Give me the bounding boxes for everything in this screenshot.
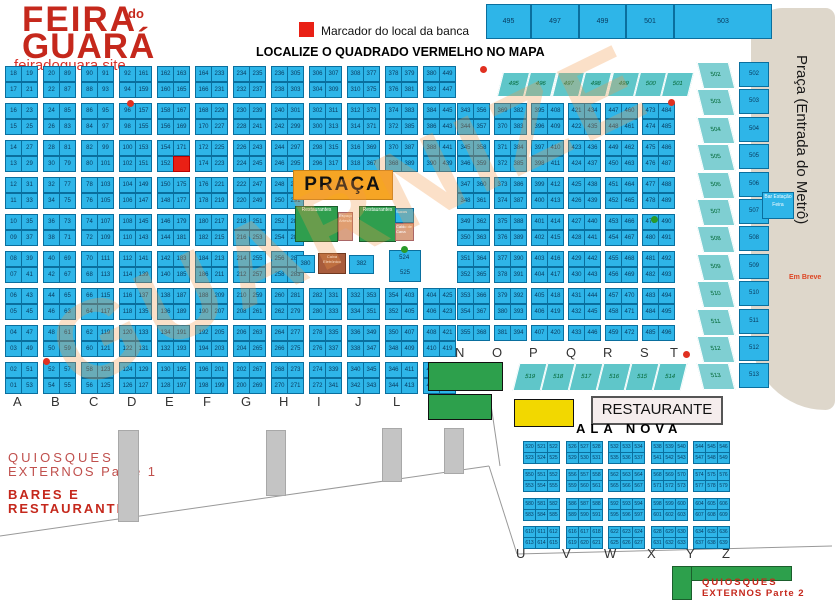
stall-cell: 18 <box>5 66 22 82</box>
stall-cell: 449 <box>605 140 622 156</box>
stall-cell: 180 <box>195 214 212 230</box>
stall-cell: 164 <box>195 66 212 82</box>
stall-cell: 05 <box>5 304 22 320</box>
stall-cell: 81 <box>59 140 76 156</box>
stall-cell: 338 <box>347 341 364 357</box>
stall-cell: 66 <box>81 288 98 304</box>
stall-cell: 58 <box>81 362 98 378</box>
stall-cell: 233 <box>211 66 228 82</box>
stall-cell: 14 <box>5 140 22 156</box>
stall-cell: 03 <box>5 341 22 357</box>
stall-cell: 76 <box>81 193 98 209</box>
stall-cell: 154 <box>157 140 174 156</box>
stall-cell: 436 <box>584 140 601 156</box>
stall-cell: 118 <box>119 304 136 320</box>
stall-cell: 350 <box>385 325 402 341</box>
stall-cell: 176 <box>195 177 212 193</box>
stall-cell: 308 <box>347 66 364 82</box>
stall-cell: 272 <box>309 378 326 394</box>
stall-cell: 379 <box>494 288 511 304</box>
stall-cell: 43 <box>21 288 38 304</box>
stall-cell: 334 <box>347 304 364 320</box>
teal-stall: 510 <box>697 281 736 308</box>
stall-cell: 370 <box>385 140 402 156</box>
stall-cell: 344 <box>457 119 474 135</box>
ala-nova-stall: 549 <box>717 452 730 464</box>
stall-cell: 423 <box>568 140 585 156</box>
stall-cell: 383 <box>510 119 527 135</box>
stall-cell: 268 <box>271 362 288 378</box>
stall-cell: 403 <box>531 251 548 267</box>
stall-cell: 134 <box>157 325 174 341</box>
column-letter-Q: Q <box>566 345 576 360</box>
stall-cell: 483 <box>642 288 659 304</box>
stall-cell: 369 <box>363 140 380 156</box>
stall-cell: 459 <box>605 325 622 341</box>
stall-cell: 119 <box>97 325 114 341</box>
stall-cell: 380 <box>296 255 315 273</box>
stall-cell: 347 <box>457 177 474 193</box>
stall-cell: 185 <box>173 267 190 283</box>
stall-cell: 102 <box>119 156 136 172</box>
stall-cell: 352 <box>457 267 474 283</box>
stall-cell: 473 <box>642 103 659 119</box>
stall-cell: 178 <box>195 193 212 209</box>
stall-cell: 202 <box>233 362 250 378</box>
stall-cell: 267 <box>249 362 266 378</box>
stall-cell: 332 <box>347 288 364 304</box>
stall-cell: 242 <box>271 119 288 135</box>
stall-cell: 150 <box>157 177 174 193</box>
column-letter-D: D <box>127 394 136 409</box>
stall-cell: 404 <box>531 267 548 283</box>
stall-cell: 300 <box>309 119 326 135</box>
stall-cell: 463 <box>621 156 638 172</box>
stall-cell: 445 <box>439 103 456 119</box>
stall-cell: 396 <box>531 119 548 135</box>
stall-cell: 136 <box>157 304 174 320</box>
stall-cell: 311 <box>325 103 342 119</box>
stall-cell: 399 <box>531 177 548 193</box>
stall-cell: 84 <box>81 119 98 135</box>
stall-cell: 417 <box>547 267 564 283</box>
stall-cell: 98 <box>119 119 136 135</box>
stall-cell: 44 <box>43 288 60 304</box>
stall-cell: 220 <box>233 193 250 209</box>
stall-cell: 410 <box>423 341 440 357</box>
stall-cell: 406 <box>423 304 440 320</box>
red-circle-icon <box>683 351 690 358</box>
stall-cell: 08 <box>5 251 22 267</box>
stall-cell: 133 <box>135 325 152 341</box>
stall-cell: 92 <box>119 66 136 82</box>
stall-cell: 413 <box>547 193 564 209</box>
stall-cell: 352 <box>385 304 402 320</box>
stall-cell: 302 <box>309 103 326 119</box>
stall-cell: 409 <box>547 119 564 135</box>
stall-cell: 372 <box>385 119 402 135</box>
stall-cell: 443 <box>584 267 601 283</box>
stall-cell: 466 <box>621 214 638 230</box>
column-letter-U: U <box>516 546 525 561</box>
stall-cell: 243 <box>249 140 266 156</box>
red-circle-icon <box>480 66 487 73</box>
stall-cell: 307 <box>325 66 342 82</box>
teal-stall: 511 <box>697 309 736 336</box>
stall-cell: 410 <box>547 140 564 156</box>
stall-cell: 40 <box>43 251 60 267</box>
stall-cell: 344 <box>385 378 402 394</box>
stall-cell: 131 <box>135 341 152 357</box>
stall-cell: 174 <box>195 156 212 172</box>
stall-cell: 409 <box>401 341 418 357</box>
stall-cell: 23 <box>21 103 38 119</box>
stall-cell: 481 <box>642 251 659 267</box>
stall-cell: 488 <box>658 177 675 193</box>
stall-cell: 374 <box>494 193 511 209</box>
stall-cell: 48 <box>43 325 60 341</box>
stall-cell: 201 <box>211 362 228 378</box>
stall-cell: 504 <box>739 117 769 142</box>
stall-cell: 61 <box>59 325 76 341</box>
stall-cell: 381 <box>401 82 418 98</box>
stall-cell: 72 <box>81 230 98 246</box>
stall-cell: 406 <box>531 304 548 320</box>
stall-cell: 97 <box>97 119 114 135</box>
stall-cell: 144 <box>157 230 174 246</box>
stall-cell: 306 <box>309 66 326 82</box>
stall-cell: 356 <box>473 103 490 119</box>
logo-do: do <box>128 6 144 21</box>
stall-cell: 50 <box>43 341 60 357</box>
stall-cell: 170 <box>195 119 212 135</box>
stall-cell: 475 <box>642 140 659 156</box>
stall-cell: 237 <box>249 82 266 98</box>
stall-cell: 238 <box>271 82 288 98</box>
stall-cell: 95 <box>97 103 114 119</box>
stall-cell: 441 <box>439 140 456 156</box>
stall-cell: 440 <box>584 214 601 230</box>
top-strip-stall: 501 <box>626 4 674 39</box>
praca-restaurantes-2: Restaurantes <box>359 206 396 242</box>
espaco-artesao-box: Espaço Artesão <box>338 212 353 241</box>
stall-cell: 372 <box>494 156 511 172</box>
stall-cell: 467 <box>621 230 638 246</box>
stall-cell: 442 <box>584 251 601 267</box>
stall-cell: 412 <box>547 177 564 193</box>
stall-cell: 386 <box>510 177 527 193</box>
stall-cell: 445 <box>584 304 601 320</box>
stall-cell: 114 <box>119 267 136 283</box>
stall-cell: 464 <box>621 177 638 193</box>
stall-cell: 370 <box>494 119 511 135</box>
stall-cell: 109 <box>97 230 114 246</box>
stall-cell: 461 <box>621 119 638 135</box>
teal-stall: 512 <box>697 336 736 363</box>
stall-cell: 337 <box>325 341 342 357</box>
stall-cell: 79 <box>59 156 76 172</box>
stall-cell: 447 <box>605 103 622 119</box>
stall-cell: 369 <box>494 103 511 119</box>
red-circle-icon <box>668 99 675 106</box>
stall-cell: 335 <box>325 325 342 341</box>
stall-cell: 333 <box>325 304 342 320</box>
bares-label-line1: BARES E <box>8 487 80 502</box>
stall-cell: 397 <box>531 140 548 156</box>
stall-cell: 24 <box>43 103 60 119</box>
stall-cell: 413 <box>401 378 418 394</box>
stall-cell: 123 <box>97 362 114 378</box>
stall-cell: 482 <box>642 267 659 283</box>
stall-cell: 54 <box>43 378 60 394</box>
stall-cell: 347 <box>363 341 380 357</box>
stall-cell: 127 <box>135 378 152 394</box>
quiosques-parte2-line2: EXTERNOS Parte 2 <box>702 588 805 599</box>
stall-cell: 263 <box>249 325 266 341</box>
stall-cell: 228 <box>233 119 250 135</box>
stall-cell: 206 <box>233 325 250 341</box>
stall-cell: 45 <box>21 304 38 320</box>
stall-cell: 65 <box>59 288 76 304</box>
stall-cell: 448 <box>605 119 622 135</box>
stall-cell: 487 <box>658 156 675 172</box>
stall-cell: 198 <box>195 378 212 394</box>
stall-cell: 245 <box>249 156 266 172</box>
column-letter-B: B <box>51 394 60 409</box>
stall-cell: 172 <box>195 140 212 156</box>
column-letter-W: W <box>604 546 616 561</box>
stall-cell: 99 <box>97 140 114 156</box>
stall-cell: 214 <box>233 251 250 267</box>
stall-cell: 480 <box>642 230 659 246</box>
stall-cell: 424 <box>568 156 585 172</box>
stall-cell: 367 <box>473 304 490 320</box>
stall-cell: 313 <box>325 119 342 135</box>
stall-cell: 510 <box>739 281 769 306</box>
pillar <box>444 428 464 474</box>
stall-cell: 78 <box>81 177 98 193</box>
stall-cell: 405 <box>401 304 418 320</box>
stall-cell: 82 <box>81 140 98 156</box>
stall-cell: 213 <box>211 251 228 267</box>
stall-cell: 437 <box>584 156 601 172</box>
stall-cell: 411 <box>401 362 418 378</box>
stall-cell: 421 <box>568 103 585 119</box>
teal-stall: 508 <box>697 226 736 253</box>
stall-cell: 32 <box>43 177 60 193</box>
stall-cell: 225 <box>211 140 228 156</box>
stall-cell: 429 <box>568 251 585 267</box>
column-letter-X: X <box>647 546 656 561</box>
stall-cell: 215 <box>211 230 228 246</box>
stall-cell: 241 <box>249 119 266 135</box>
stall-cell: 42 <box>43 267 60 283</box>
stall-cell: 377 <box>363 66 380 82</box>
stall-cell: 441 <box>584 230 601 246</box>
stall-cell: 455 <box>605 251 622 267</box>
column-letter-J: J <box>355 394 362 409</box>
stall-cell: 226 <box>233 140 250 156</box>
stall-cell: 312 <box>347 103 364 119</box>
teal-stall: 507 <box>697 199 736 226</box>
stall-cell: 152 <box>157 156 174 172</box>
stall-cell: 439 <box>584 193 601 209</box>
stall-cell: 85 <box>59 103 76 119</box>
stall-cell: 443 <box>439 119 456 135</box>
stall-cell: 27 <box>21 140 38 156</box>
stall-cell: 217 <box>211 214 228 230</box>
stall-cell: 389 <box>401 156 418 172</box>
praca-restaurantes-1: Restaurantes <box>295 206 338 242</box>
stall-cell: 161 <box>135 66 152 82</box>
stall-cell: 250 <box>271 193 288 209</box>
stall-cell: 363 <box>473 230 490 246</box>
top-strip-stall: 495 <box>486 4 531 39</box>
stall-cell: 377 <box>494 251 511 267</box>
stall-cell: 388 <box>510 214 527 230</box>
stall-cell: 491 <box>658 230 675 246</box>
stall-cell: 187 <box>173 288 190 304</box>
stall-cell: 89 <box>59 66 76 82</box>
stall-cell: 15 <box>5 119 22 135</box>
stall-cell: 390 <box>423 156 440 172</box>
stall-cell: 472 <box>621 325 638 341</box>
stall-cell: 116 <box>119 288 136 304</box>
stall-cell: 186 <box>195 267 212 283</box>
stall-cell: 33 <box>21 193 38 209</box>
stall-cell: 129 <box>135 362 152 378</box>
stall-cell: 276 <box>309 341 326 357</box>
column-letter-A: A <box>13 394 22 409</box>
stall-cell: 16 <box>5 103 22 119</box>
stall-cell: 343 <box>457 103 474 119</box>
stall-cell: 75 <box>59 193 76 209</box>
stall-cell: 407 <box>401 325 418 341</box>
stall-cell: 382 <box>349 255 374 274</box>
stall-cell: 36 <box>43 214 60 230</box>
stall-cell: 509 <box>739 254 769 279</box>
stall-cell: 503 <box>739 89 769 114</box>
column-letter-L: L <box>393 394 400 409</box>
stall-cell: 348 <box>457 193 474 209</box>
stall-cell: 350 <box>457 230 474 246</box>
stall-cell: 453 <box>605 214 622 230</box>
stall-cell: 10 <box>5 214 22 230</box>
stall-cell: 385 <box>510 156 527 172</box>
stall-cell: 39 <box>21 251 38 267</box>
column-letter-O: O <box>492 345 502 360</box>
stall-cell: 167 <box>173 103 190 119</box>
stall-cell: 126 <box>119 378 136 394</box>
stall-cell: 125 <box>97 378 114 394</box>
stall-cell: 30 <box>43 156 60 172</box>
stall-cell: 25 <box>21 119 38 135</box>
ala-nova-stall: 537 <box>632 452 645 464</box>
stall-cell: 279 <box>287 304 304 320</box>
stall-cell: 255 <box>249 251 266 267</box>
stall-cell: 74 <box>81 214 98 230</box>
stall-cell: 340 <box>347 362 364 378</box>
stall-cell: 162 <box>157 66 174 82</box>
stall-cell: 210 <box>233 288 250 304</box>
ala-nova-stall: 597 <box>632 509 645 521</box>
stall-cell: 384 <box>510 140 527 156</box>
stall-cell: 240 <box>271 103 288 119</box>
stall-cell: 380 <box>423 66 440 82</box>
stall-cell: 244 <box>271 140 288 156</box>
ala-nova-stall: 555 <box>547 480 560 492</box>
stall-cell: 51 <box>21 362 38 378</box>
teal-stall: 503 <box>697 89 736 116</box>
column-letter-P: P <box>529 345 538 360</box>
stall-cell: 371 <box>363 119 380 135</box>
stall-cell: 156 <box>157 119 174 135</box>
stall-cell: 163 <box>173 66 190 82</box>
stall-cell: 117 <box>97 304 114 320</box>
pillar <box>266 430 286 496</box>
stall-cell: 139 <box>135 267 152 283</box>
stall-cell: 349 <box>363 325 380 341</box>
stall-cell: 378 <box>385 66 402 82</box>
stall-cell: 423 <box>439 304 456 320</box>
stall-cell: 398 <box>531 156 548 172</box>
stall-cell: 147 <box>135 193 152 209</box>
locate-instruction: LOCALIZE O QUADRADO VERMELHO NO MAPA <box>256 45 545 59</box>
stall-cell: 148 <box>157 193 174 209</box>
stall-cell: 353 <box>363 288 380 304</box>
stall-cell: 257 <box>249 267 266 283</box>
stall-cell: 315 <box>325 140 342 156</box>
stall-cell: 115 <box>97 288 114 304</box>
green-circle-icon <box>651 216 658 223</box>
stall-cell: 408 <box>547 103 564 119</box>
stall-cell: 227 <box>211 119 228 135</box>
stall-cell: 435 <box>584 119 601 135</box>
stall-cell: 182 <box>195 230 212 246</box>
stall-cell: 184 <box>195 251 212 267</box>
stall-cell: 26 <box>43 119 60 135</box>
stall-cell: 151 <box>135 156 152 172</box>
stall-cell: 343 <box>363 378 380 394</box>
stall-cell: 353 <box>457 288 474 304</box>
stall-cell: 513 <box>739 363 769 388</box>
stall-cell: 477 <box>642 177 659 193</box>
stall-cell: 269 <box>249 378 266 394</box>
stall-cell: 107 <box>97 214 114 230</box>
stall-cell: 362 <box>473 214 490 230</box>
stall-cell: 137 <box>135 288 152 304</box>
stall-cell: 449 <box>439 66 456 82</box>
stall-cell: 387 <box>401 140 418 156</box>
stall-cell: 112 <box>119 251 136 267</box>
column-letter-G: G <box>241 394 251 409</box>
stall-cell: 01 <box>5 378 22 394</box>
stall-cell: 181 <box>173 230 190 246</box>
stall-cell: 310 <box>347 82 364 98</box>
pillar <box>382 428 402 482</box>
stall-cell: 395 <box>531 103 548 119</box>
column-letter-H: H <box>279 394 288 409</box>
stall-cell: 28 <box>43 140 60 156</box>
quiosques-parte1-line1: QUIOSQUES <box>8 450 114 465</box>
stall-cell: 145 <box>135 214 152 230</box>
stall-cell: 342 <box>347 378 364 394</box>
stall-cell: 143 <box>135 230 152 246</box>
stall-cell: 422 <box>568 119 585 135</box>
pillar <box>118 430 139 522</box>
legend-marker-swatch <box>299 22 314 37</box>
ala-nova-stall: 531 <box>590 452 603 464</box>
